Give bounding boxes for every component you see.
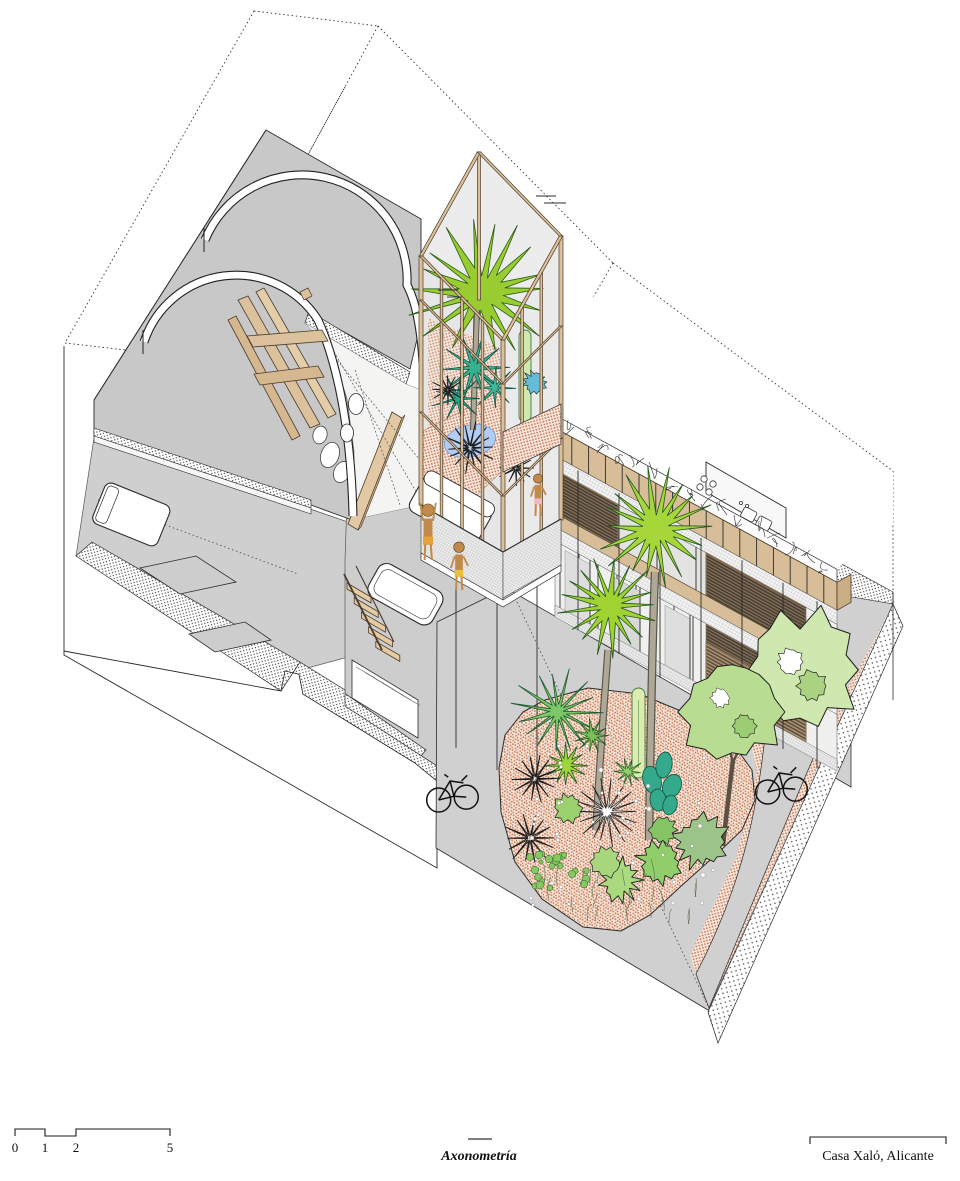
svg-text:0: 0 bbox=[12, 1140, 19, 1155]
svg-text:Casa Xaló, Alicante: Casa Xaló, Alicante bbox=[822, 1149, 934, 1164]
svg-text:Axonometría: Axonometría bbox=[440, 1149, 516, 1164]
svg-text:2: 2 bbox=[73, 1140, 80, 1155]
svg-text:5: 5 bbox=[167, 1140, 174, 1155]
svg-text:1: 1 bbox=[42, 1140, 49, 1155]
